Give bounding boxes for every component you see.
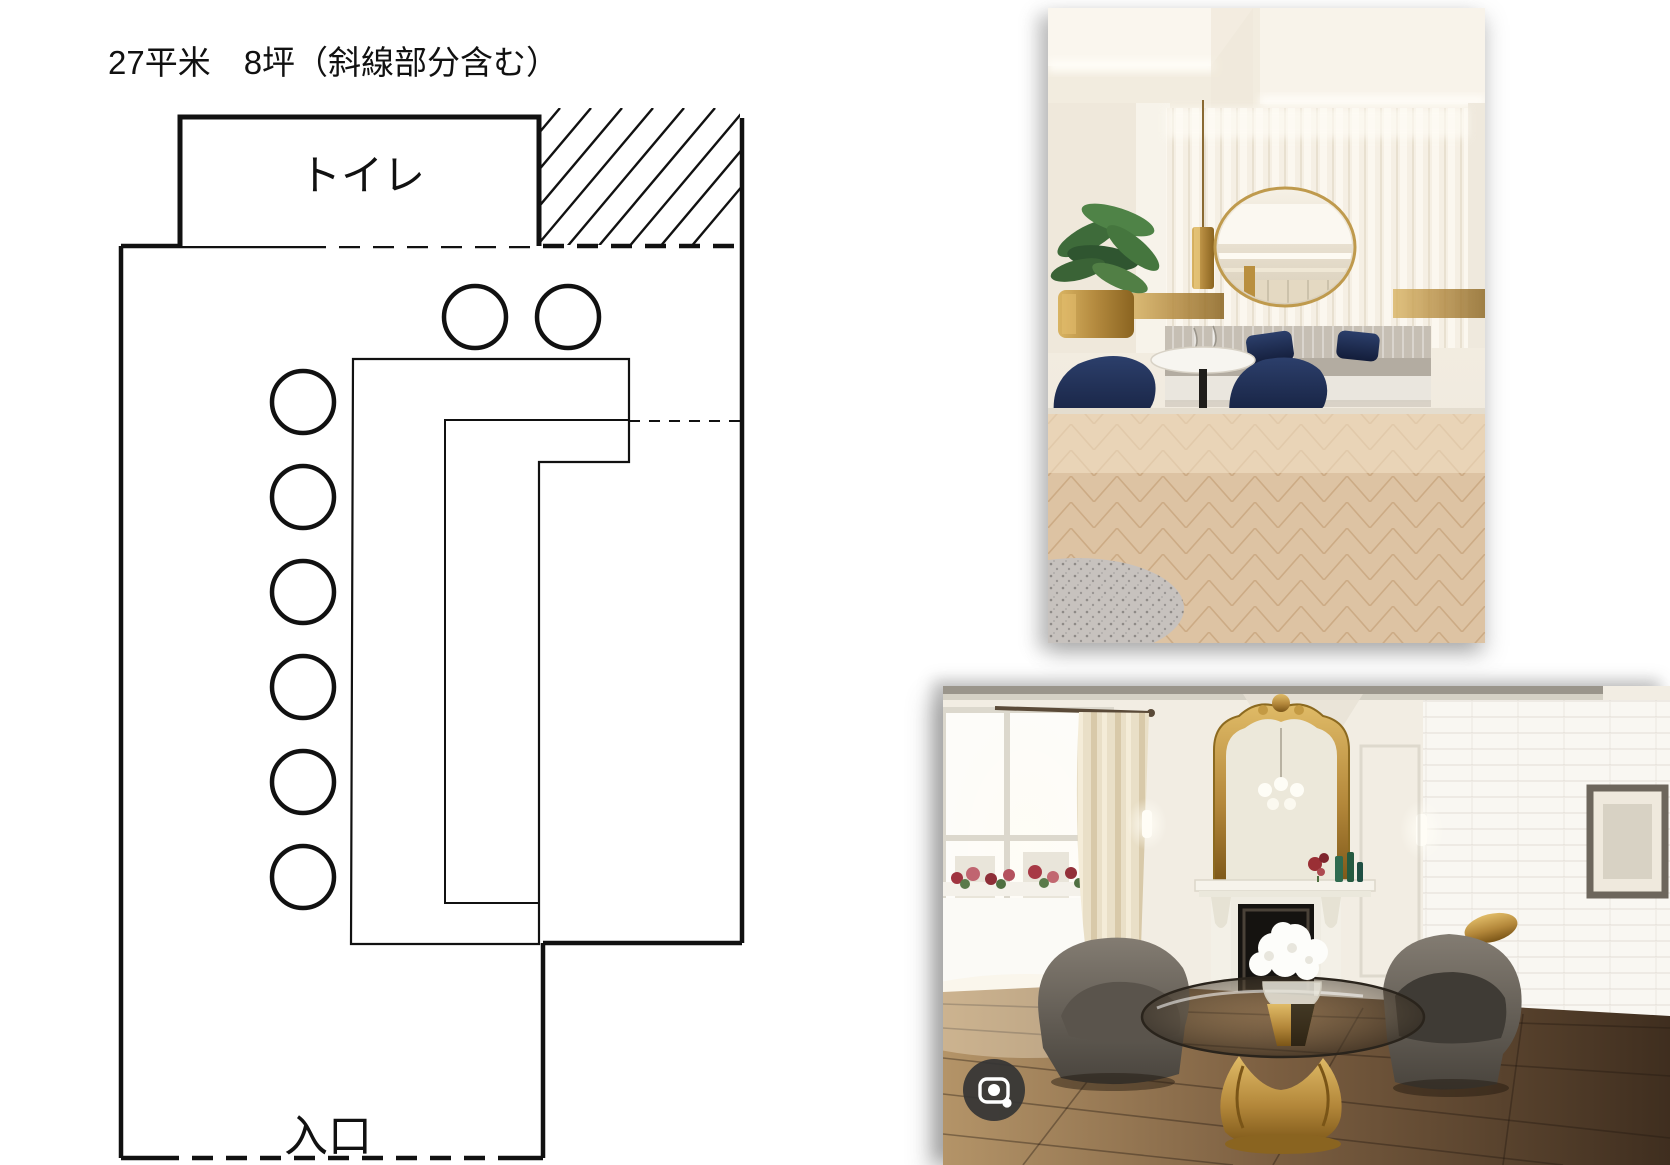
seat-circle <box>537 286 599 348</box>
seat-circle <box>272 561 334 623</box>
seat-circle <box>444 286 506 348</box>
seat-circle <box>272 466 334 528</box>
toilet-room: トイレ <box>180 117 539 246</box>
camera-lens-icon[interactable] <box>963 1059 1025 1121</box>
round-mirror <box>1215 188 1355 306</box>
toilet-label: トイレ <box>299 152 425 199</box>
counter-outer-edge <box>351 359 629 944</box>
counter <box>351 359 742 944</box>
seat-circle <box>272 846 334 908</box>
sitting-room-art <box>943 686 1670 1165</box>
sitting-room-photo <box>943 686 1670 1165</box>
entrance-label: 入口 <box>284 1112 372 1161</box>
framed-picture-art <box>1603 804 1652 879</box>
seat-circle <box>272 656 334 718</box>
floor-plan-diagram: 27平米 8坪（斜線部分含む） <box>0 0 820 1165</box>
lounge-photo <box>1048 8 1485 643</box>
lounge-photo-art <box>1048 8 1485 643</box>
floor-plan-title: 27平米 8坪（斜線部分含む） <box>108 44 559 81</box>
page-canvas: 27平米 8坪（斜線部分含む） <box>0 0 1670 1165</box>
seat-circle <box>272 371 334 433</box>
seat-circle <box>272 751 334 813</box>
